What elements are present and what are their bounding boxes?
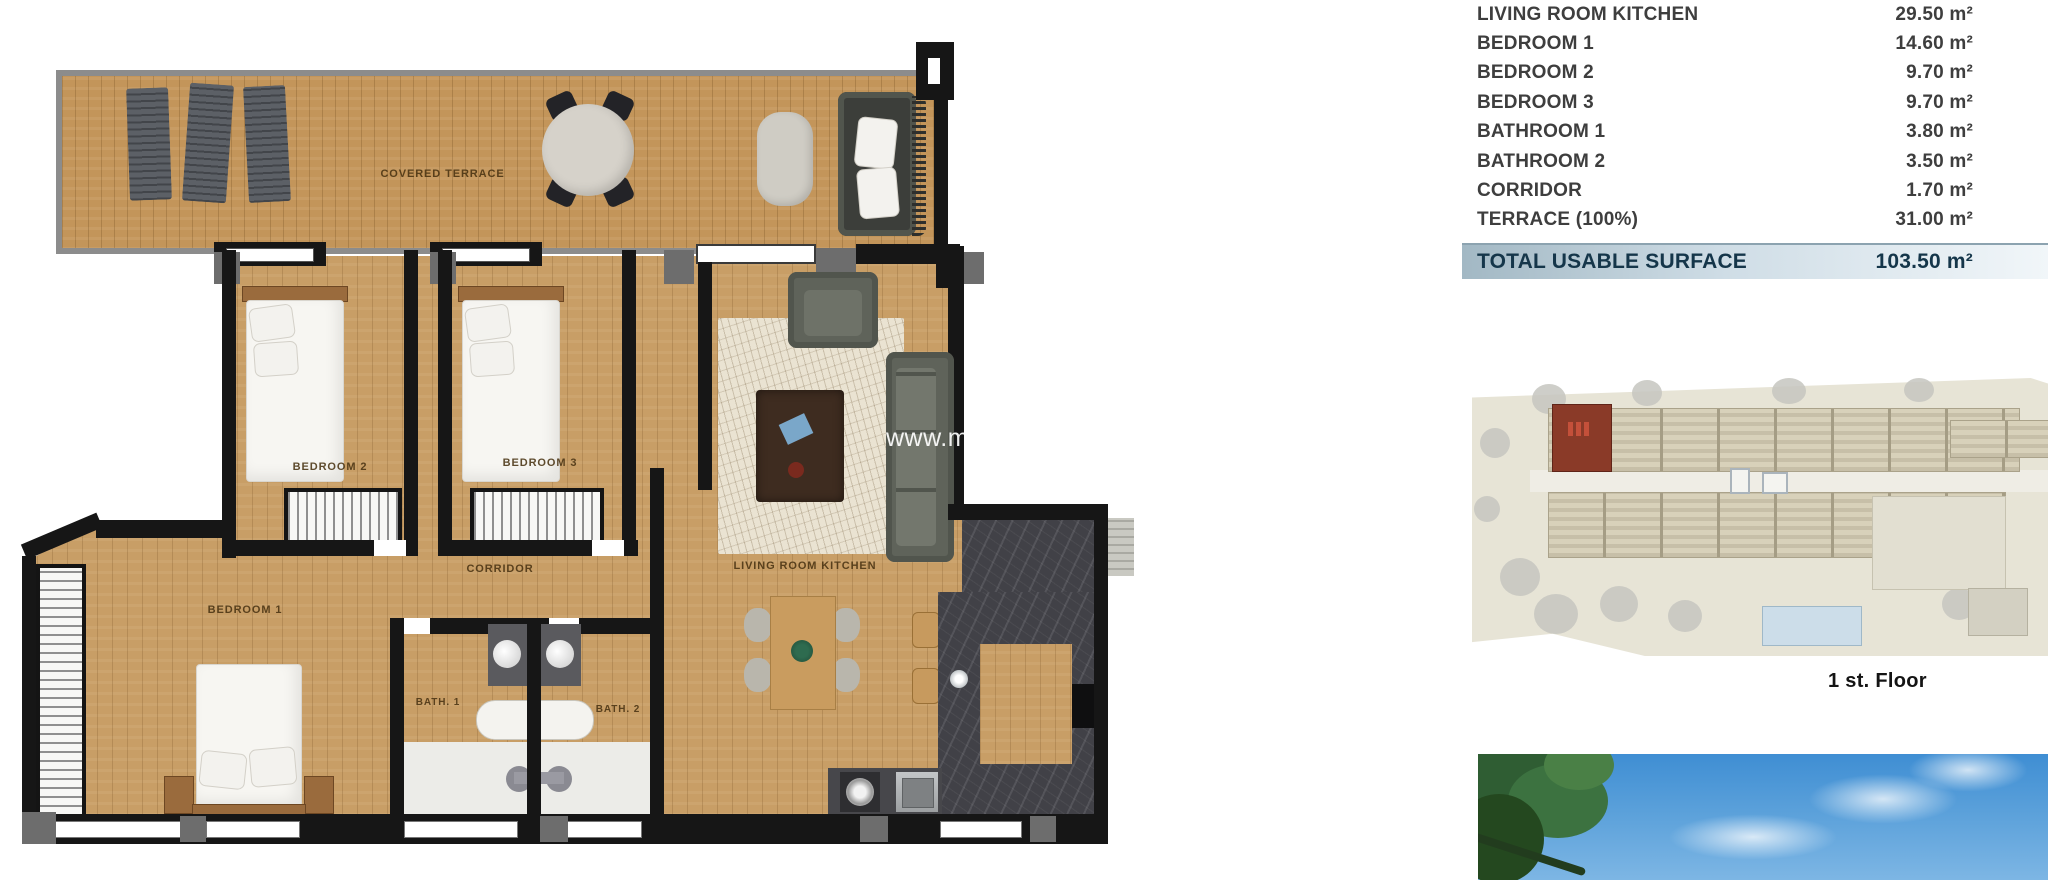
site-central-path — [1530, 470, 2048, 492]
bedroom1-pillow-2 — [248, 746, 297, 788]
bedroom2-door-gap — [374, 540, 406, 556]
terrace-round-table — [542, 104, 634, 196]
row-label: CORRIDOR — [1477, 180, 1582, 202]
watermark: www.me — [886, 424, 976, 452]
floor-plan: COVERED TERRACE — [0, 0, 1150, 880]
bottom-window-1 — [52, 821, 182, 838]
row-label: BEDROOM 3 — [1477, 92, 1594, 114]
bath-left-wall — [390, 618, 404, 820]
row-value: 3.50 m² — [1906, 151, 1973, 173]
site-pool — [1762, 606, 1862, 646]
living-sofa-cushions — [896, 368, 936, 546]
terrace-sofa-pillow-2 — [856, 166, 900, 219]
living-window — [696, 244, 816, 264]
bottom-window-2 — [206, 821, 300, 838]
site-tree — [1480, 428, 1510, 458]
row-label: BATHROOM 2 — [1477, 151, 1605, 173]
bath1-door-gap — [400, 618, 430, 634]
site-tree — [1904, 378, 1934, 402]
bottom-pillar-5 — [1030, 816, 1056, 842]
terrace-right-wall — [934, 96, 948, 254]
site-tree — [1474, 496, 1500, 522]
terrace-top-wall — [56, 70, 950, 76]
terrace-left-wall — [56, 70, 62, 254]
bedroom1-wardrobe — [36, 564, 86, 820]
row-value: 1.70 m² — [1906, 180, 1973, 202]
row-label: BATHROOM 1 — [1477, 121, 1605, 143]
bedroom3-door-gap — [592, 540, 624, 556]
total-value: 103.50 m² — [1875, 250, 1973, 274]
bedroom2-pillow-1 — [248, 303, 296, 343]
bottom-window-5 — [940, 821, 1022, 838]
site-tree — [1600, 586, 1638, 622]
bottom-pillar-3 — [540, 816, 568, 842]
kitchen-appliance — [1072, 684, 1094, 728]
dining-chair-1 — [744, 608, 772, 642]
bar-stool-1 — [912, 612, 940, 648]
bath-right-wall — [650, 468, 664, 816]
row-value: 31.00 m² — [1895, 209, 1973, 231]
bedroom1-nightstand-left — [164, 776, 194, 814]
table-row: TERRACE (100%) 31.00 m² — [1477, 206, 1973, 235]
kitchen-island — [980, 644, 1072, 764]
bath-divider-wall — [527, 618, 541, 820]
bottom-pillar-1 — [22, 812, 56, 844]
extension-right-wall — [1094, 504, 1108, 818]
cloud — [1668, 814, 1838, 860]
dining-chair-4 — [832, 658, 860, 692]
table-row: BEDROOM 2 9.70 m² — [1477, 59, 1973, 88]
total-label: TOTAL USABLE SURFACE — [1477, 250, 1747, 274]
terrace-corner-pillar-slot — [928, 58, 940, 84]
site-tree — [1500, 558, 1540, 596]
bar-stool-2 — [912, 668, 940, 704]
bath1-sink — [493, 640, 521, 668]
entrance-steps — [1108, 518, 1134, 576]
terrace-pouf — [757, 112, 813, 206]
site-building-right — [1950, 420, 2048, 458]
table-row: BEDROOM 1 14.60 m² — [1477, 29, 1973, 58]
row-label: BEDROOM 1 — [1477, 33, 1594, 55]
row-value: 29.50 m² — [1895, 4, 1973, 26]
living-armchair-cushion — [804, 290, 862, 336]
sun-lounger-2 — [182, 83, 234, 204]
bedroom3-label: BEDROOM 3 — [485, 457, 595, 469]
corridor-label: CORRIDOR — [450, 563, 550, 575]
bedroom1-top-wall — [96, 520, 226, 538]
kitchen-faucet — [950, 670, 968, 688]
bedroom3-pillow-1 — [464, 303, 512, 343]
site-unit-highlight — [1552, 404, 1612, 472]
bottom-pillar-4 — [860, 816, 888, 842]
site-plan — [1472, 378, 2048, 656]
coffee-table — [756, 390, 844, 502]
bottom-pillar-2 — [180, 816, 206, 842]
row-label: TERRACE (100%) — [1477, 209, 1638, 231]
site-tree — [1632, 380, 1662, 406]
site-path-marks — [1730, 468, 1750, 494]
dining-plant — [791, 640, 813, 662]
row-value: 9.70 m² — [1906, 62, 1973, 84]
table-row: CORRIDOR 1.70 m² — [1477, 176, 1973, 205]
bath1-label: BATH. 1 — [405, 697, 471, 708]
table-row: BEDROOM 3 9.70 m² — [1477, 88, 1973, 117]
bath2-sink — [546, 640, 574, 668]
site-tree — [1772, 378, 1806, 404]
coffee-table-deco-red — [788, 462, 804, 478]
row-value: 3.80 m² — [1906, 121, 1973, 143]
bedroom2-wardrobe — [284, 488, 402, 548]
row-value: 14.60 m² — [1895, 33, 1973, 55]
bedroom2-left-wall — [222, 250, 236, 558]
site-path-marks-2 — [1762, 472, 1788, 494]
dining-chair-2 — [744, 658, 772, 692]
bedroom3-left-wall — [438, 250, 452, 556]
table-row: LIVING ROOM KITCHEN 29.50 m² — [1477, 0, 1973, 29]
sun-lounger-1 — [126, 87, 172, 200]
cloud — [1908, 754, 2028, 792]
terrace-sofa-fringe — [912, 96, 926, 236]
terrace-sofa-pillow-1 — [853, 116, 898, 170]
site-tree — [1668, 600, 1702, 632]
extension-top-wall — [948, 504, 1108, 520]
covered-terrace-label: COVERED TERRACE — [370, 168, 515, 180]
bedroom2-label: BEDROOM 2 — [275, 461, 385, 473]
bath2-label: BATH. 2 — [585, 704, 651, 715]
kitchen-sink-basin — [902, 778, 934, 808]
bedroom2-right-wall — [404, 250, 418, 556]
brochure-page: COVERED TERRACE — [0, 0, 2048, 880]
site-parking — [1872, 496, 2006, 590]
bedroom3-pillow-2 — [469, 341, 515, 378]
bedroom1-pillow-1 — [198, 750, 248, 791]
bedroom3-wardrobe — [470, 488, 604, 548]
row-label: LIVING ROOM KITCHEN — [1477, 4, 1698, 26]
dining-chair-3 — [832, 608, 860, 642]
floor-caption: 1 st. Floor — [1828, 670, 1927, 693]
living-wall-segment — [856, 244, 938, 264]
bedroom1-nightstand-right — [304, 776, 334, 814]
bedroom1-left-wall — [22, 556, 36, 818]
photo — [1478, 754, 2048, 880]
sun-lounger-3 — [243, 85, 291, 203]
site-tree — [1534, 594, 1578, 634]
row-value: 9.70 m² — [1906, 92, 1973, 114]
table-row: BATHROOM 2 3.50 m² — [1477, 147, 1973, 176]
bedroom2-pillow-2 — [253, 341, 299, 378]
oven-ring — [846, 778, 874, 806]
bottom-window-4 — [560, 821, 642, 838]
living-left-wall-upper — [698, 262, 712, 490]
bedroom1-label: BEDROOM 1 — [185, 604, 305, 616]
bottom-window-3 — [404, 821, 518, 838]
total-usable-surface-bar: TOTAL USABLE SURFACE 103.50 m² — [1462, 243, 2048, 279]
bedroom3-right-wall — [622, 250, 636, 556]
living-room-label: LIVING ROOM KITCHEN — [710, 560, 900, 572]
row-label: BEDROOM 2 — [1477, 62, 1594, 84]
site-unit-highlight-marks — [1568, 422, 1590, 436]
site-structure — [1968, 588, 2028, 636]
living-wall-pillar-left — [664, 250, 694, 284]
table-row: BATHROOM 1 3.80 m² — [1477, 118, 1973, 147]
